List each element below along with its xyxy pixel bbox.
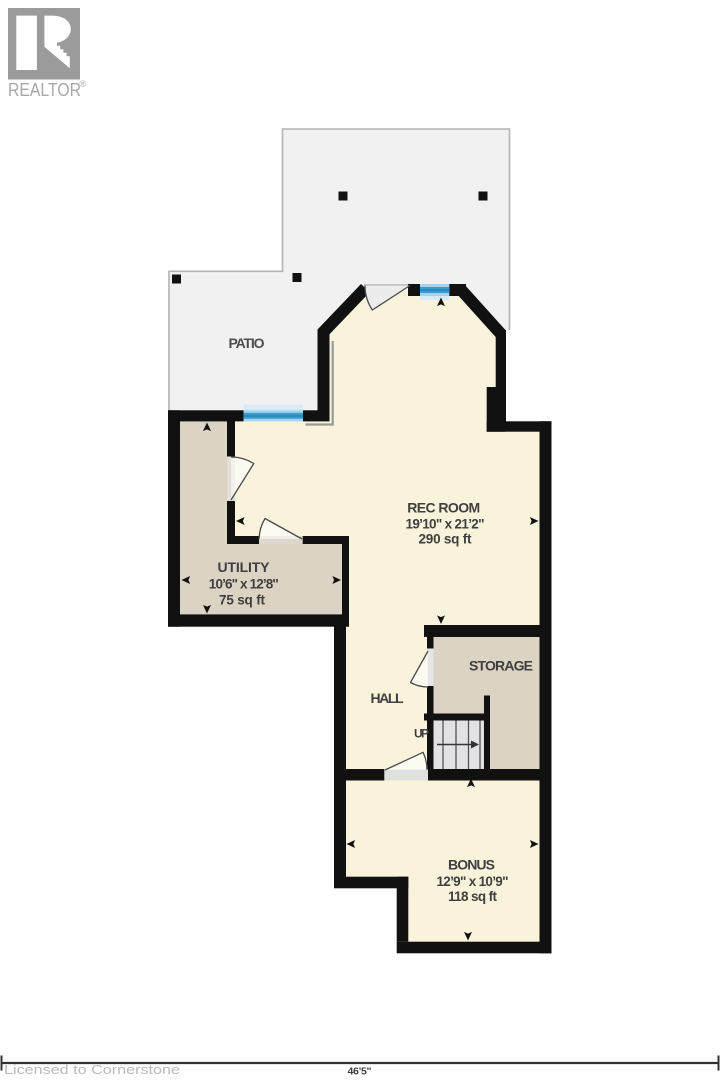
svg-text:UP: UP xyxy=(414,727,429,741)
svg-text:12’9" x 10’9": 12’9" x 10’9" xyxy=(437,874,509,889)
svg-text:REC ROOM: REC ROOM xyxy=(407,500,480,516)
svg-text:Licensed to Cornerstone: Licensed to Cornerstone xyxy=(4,1062,180,1077)
svg-text:BONUS: BONUS xyxy=(448,857,495,873)
svg-text:STORAGE: STORAGE xyxy=(469,658,533,674)
svg-text:118 sq ft: 118 sq ft xyxy=(448,889,498,904)
svg-text:19’10" x 21’2": 19’10" x 21’2" xyxy=(406,517,485,532)
svg-text:HALL: HALL xyxy=(371,690,404,706)
svg-text:UTILITY: UTILITY xyxy=(218,559,271,575)
svg-text:290 sq ft: 290 sq ft xyxy=(419,532,473,547)
svg-text:10’6" x 12’8": 10’6" x 12’8" xyxy=(209,577,279,592)
svg-text:46’5": 46’5" xyxy=(348,1066,372,1078)
svg-text:®: ® xyxy=(80,79,87,89)
svg-text:PATIO: PATIO xyxy=(229,335,266,351)
svg-text:75 sq ft: 75 sq ft xyxy=(219,593,266,608)
svg-text:REALTOR: REALTOR xyxy=(8,79,81,100)
